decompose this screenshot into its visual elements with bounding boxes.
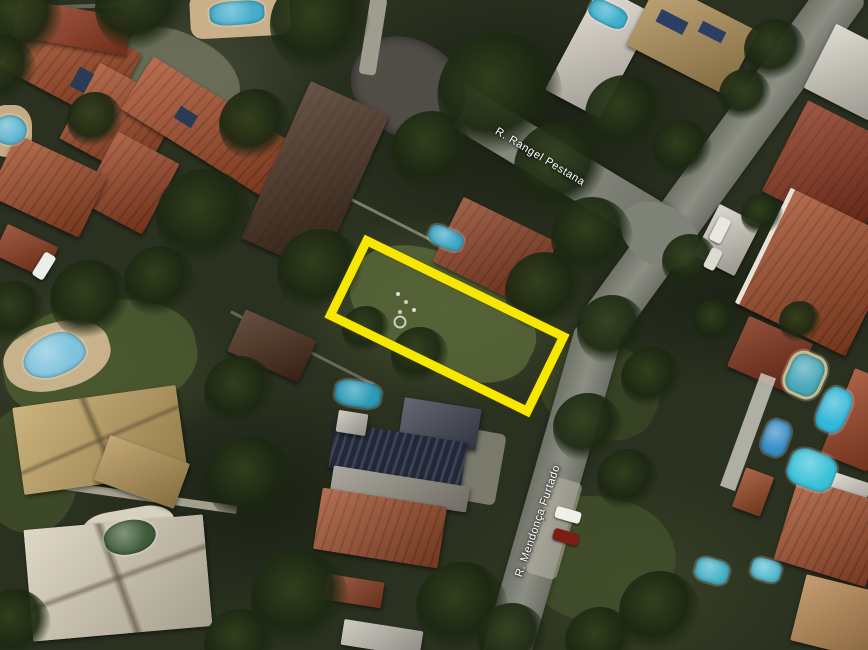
tree xyxy=(621,347,683,409)
tree xyxy=(741,194,783,236)
orange-roof-house xyxy=(774,477,868,587)
tree xyxy=(204,356,276,428)
tree xyxy=(391,111,473,193)
tree xyxy=(219,89,291,161)
white-roof-building xyxy=(340,619,423,650)
tree xyxy=(597,449,659,511)
tree xyxy=(692,299,738,345)
tree xyxy=(50,260,130,340)
tree xyxy=(719,69,771,121)
tree xyxy=(206,436,294,524)
tree xyxy=(124,246,196,318)
red-roof-house xyxy=(0,224,59,278)
swimming-pool xyxy=(333,378,383,411)
tree xyxy=(779,301,821,343)
white-roof-section xyxy=(335,410,368,436)
map-canvas[interactable]: R. Rangel Pestana R. Mendonça Furtado xyxy=(0,0,868,650)
swimming-pool xyxy=(692,555,731,587)
tree xyxy=(67,92,123,148)
tree xyxy=(652,120,712,180)
tan-roof-house xyxy=(790,574,868,650)
swimming-pool xyxy=(758,417,795,460)
